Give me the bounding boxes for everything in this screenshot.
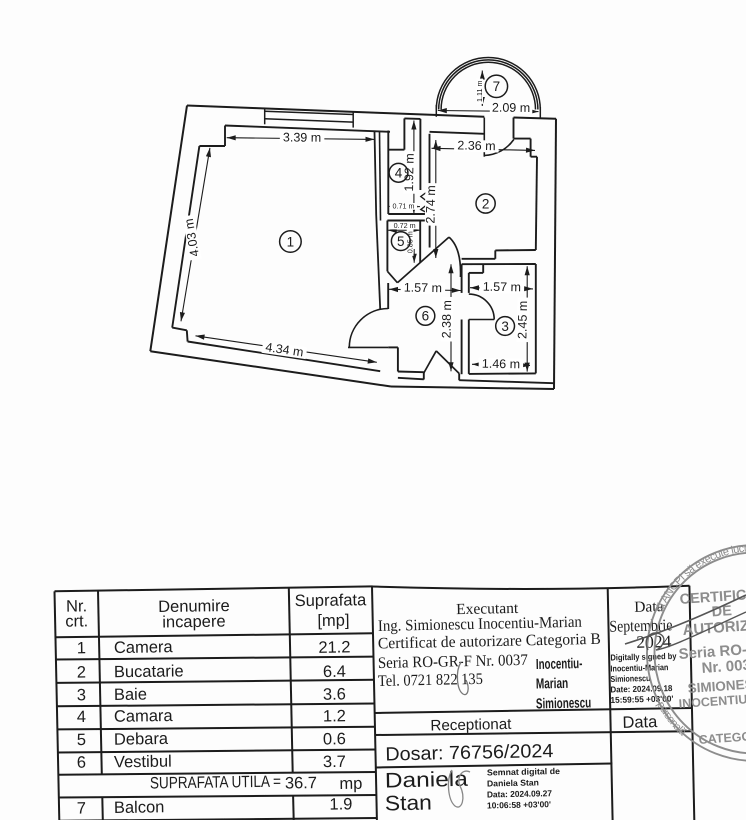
- svg-text:SUPRAFATA UTILA =: SUPRAFATA UTILA =: [150, 773, 281, 793]
- svg-text:2.74 m: 2.74 m: [423, 185, 438, 223]
- svg-text:6: 6: [422, 309, 430, 324]
- svg-text:mp: mp: [339, 775, 362, 793]
- svg-text:5: 5: [397, 234, 405, 249]
- svg-text:1.9: 1.9: [329, 795, 352, 813]
- svg-text:1.57 m: 1.57 m: [483, 280, 521, 295]
- svg-text:Simionescu: Simionescu: [536, 695, 592, 712]
- svg-text:Receptionat: Receptionat: [430, 716, 512, 735]
- svg-text:10:06:58 +03'00': 10:06:58 +03'00': [487, 799, 551, 810]
- svg-text:Inocentiu-: Inocentiu-: [536, 656, 583, 673]
- svg-text:Bucatarie: Bucatarie: [114, 662, 184, 681]
- svg-text:7: 7: [77, 799, 86, 817]
- svg-text:Data: Data: [622, 713, 658, 732]
- svg-text:2.09 m: 2.09 m: [492, 101, 530, 115]
- svg-text:2: 2: [482, 196, 490, 211]
- svg-text:Digitally signed by: Digitally signed by: [610, 651, 676, 663]
- svg-text:3.39 m: 3.39 m: [283, 130, 321, 144]
- svg-text:1: 1: [287, 234, 295, 249]
- svg-text:1.11 m: 1.11 m: [475, 80, 484, 101]
- svg-text:Daniela: Daniela: [385, 768, 469, 793]
- svg-text:CATEGORIA: CATEGORIA: [698, 728, 746, 747]
- svg-text:1.46 m: 1.46 m: [482, 357, 520, 372]
- svg-text:Certificat de autorizare Categ: Certificat de autorizare Categoria B: [378, 631, 601, 653]
- svg-text:5: 5: [77, 731, 86, 749]
- svg-text:2.45 m: 2.45 m: [515, 301, 530, 339]
- svg-text:Seria RO-GR-F Nr. 0037: Seria RO-GR-F Nr. 0037: [378, 652, 528, 672]
- svg-text:6: 6: [77, 754, 86, 772]
- svg-text:3: 3: [501, 319, 509, 334]
- svg-text:[mp]: [mp]: [317, 612, 349, 630]
- svg-text:1.92 m: 1.92 m: [402, 153, 417, 191]
- svg-text:Dosar: 76756/2024: Dosar: 76756/2024: [385, 741, 554, 766]
- svg-text:3: 3: [77, 686, 86, 704]
- svg-text:1.2: 1.2: [323, 707, 346, 725]
- svg-text:3.7: 3.7: [323, 753, 346, 771]
- svg-text:Stan: Stan: [385, 792, 432, 816]
- svg-text:Baie: Baie: [114, 686, 147, 704]
- svg-text:Camara: Camara: [114, 707, 174, 726]
- svg-text:Balcon: Balcon: [114, 798, 165, 817]
- svg-text:incapere: incapere: [162, 613, 226, 632]
- svg-text:crt.: crt.: [65, 612, 88, 630]
- svg-text:Simionescu: Simionescu: [610, 673, 650, 684]
- svg-text:Tel. 0721 822 135: Tel. 0721 822 135: [378, 671, 483, 690]
- svg-text:Daniela Stan: Daniela Stan: [487, 777, 539, 788]
- svg-text:0.71 m: 0.71 m: [393, 202, 415, 211]
- svg-text:Suprafata: Suprafata: [295, 591, 368, 610]
- svg-text:3.6: 3.6: [323, 685, 346, 703]
- svg-text:Debara: Debara: [114, 730, 169, 749]
- svg-text:36.7: 36.7: [285, 774, 317, 792]
- svg-text:2.38 m: 2.38 m: [439, 300, 454, 338]
- svg-text:21.2: 21.2: [318, 638, 350, 656]
- svg-text:2: 2: [77, 664, 86, 682]
- svg-text:7: 7: [493, 79, 501, 94]
- svg-text:2.36 m: 2.36 m: [457, 138, 496, 153]
- svg-text:Camera: Camera: [114, 638, 174, 657]
- svg-text:1.57 m: 1.57 m: [404, 281, 442, 296]
- svg-text:Vestibul: Vestibul: [114, 753, 172, 772]
- svg-text:Data: 2024.09.27: Data: 2024.09.27: [487, 788, 552, 799]
- svg-text:4: 4: [77, 708, 86, 726]
- svg-text:Inocentiu-Marian: Inocentiu-Marian: [610, 662, 668, 673]
- svg-text:6.4: 6.4: [323, 663, 346, 681]
- svg-text:0.6: 0.6: [323, 730, 346, 748]
- svg-text:1: 1: [77, 639, 86, 657]
- svg-text:4: 4: [395, 166, 403, 181]
- svg-text:4.34 m: 4.34 m: [265, 340, 305, 359]
- svg-text:Marian: Marian: [536, 676, 569, 693]
- svg-text:4.03 m: 4.03 m: [182, 218, 202, 258]
- svg-text:Semnat digital de: Semnat digital de: [487, 766, 560, 778]
- svg-text:Nr. 0037: Nr. 0037: [701, 656, 746, 677]
